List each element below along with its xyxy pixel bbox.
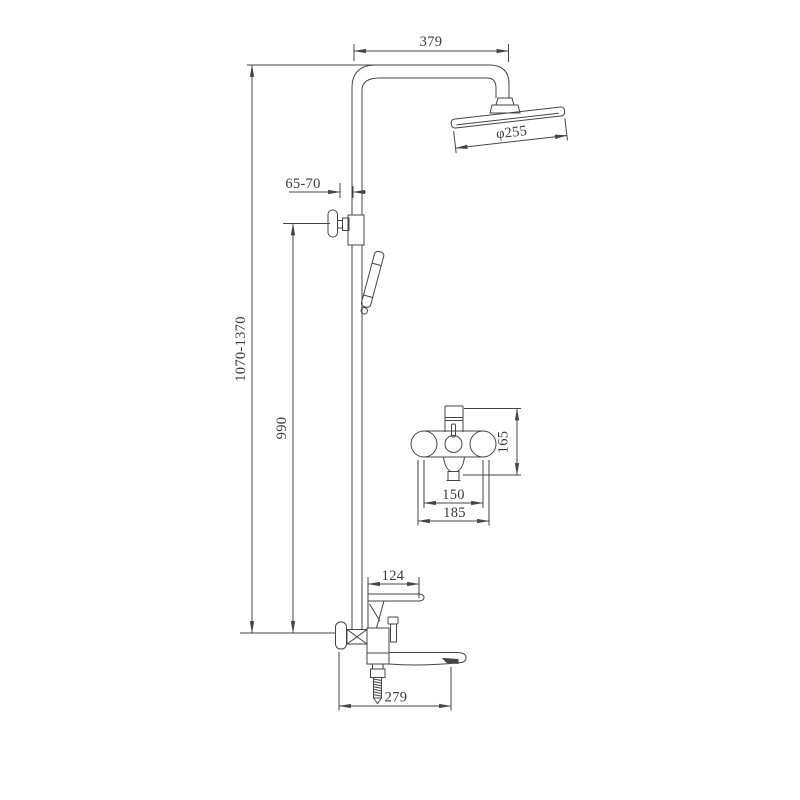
dimension-total-height: 1070-1370 [233, 65, 378, 633]
valve-outlet-cup [444, 457, 465, 472]
hand-shower [359, 251, 385, 315]
riser-pipe-and-arm [348, 65, 509, 629]
dim-spout-reach-label: 279 [385, 690, 408, 706]
dim-total-height-label: 1070-1370 [233, 316, 249, 382]
bath-faucet [336, 594, 467, 704]
spout-tip [458, 653, 466, 663]
dimension-arm-reach: 379 [354, 34, 509, 62]
dimension-spout-reach: 279 [339, 652, 451, 711]
shower-head-connector [490, 98, 520, 113]
dim-valve-width-label: 185 [443, 505, 466, 521]
faucet-handle-blade [368, 594, 424, 601]
lower-wall-flange [336, 622, 347, 649]
dim-valve-height-label: 165 [496, 431, 512, 454]
hose-nut [371, 669, 386, 678]
dim-arm-reach-label: 379 [420, 34, 443, 50]
spout-aerator [443, 659, 458, 664]
drawing-page: φ255 379 1070-1370 990 65-70 [0, 0, 800, 800]
diverter-knob [388, 617, 398, 624]
upper-wall-bracket [328, 210, 349, 237]
dimension-valve-hole-spacing: 150 [424, 460, 483, 508]
dimension-riser-height: 990 [274, 224, 330, 634]
hose-tail-threads [374, 678, 382, 704]
valve-cartridge-boss [445, 436, 462, 453]
slider-sleeve [348, 215, 364, 245]
dim-bracket-depth-label: 65-70 [285, 176, 320, 192]
rain-shower-head: φ255 [451, 107, 568, 154]
dimension-bracket-depth: 65-70 [285, 176, 366, 198]
dimension-valve-height: 165 [463, 409, 521, 476]
dim-handle-length-label: 124 [382, 568, 405, 584]
valve-right-flange [470, 431, 496, 457]
valve-left-flange [411, 431, 437, 457]
dim-valve-hole-spacing-label: 150 [442, 487, 465, 503]
faucet-body [367, 628, 389, 653]
technical-drawing-canvas: φ255 379 1070-1370 990 65-70 [0, 0, 800, 800]
dim-riser-height-label: 990 [274, 417, 290, 440]
dim-head-diameter-label: φ255 [495, 123, 528, 142]
